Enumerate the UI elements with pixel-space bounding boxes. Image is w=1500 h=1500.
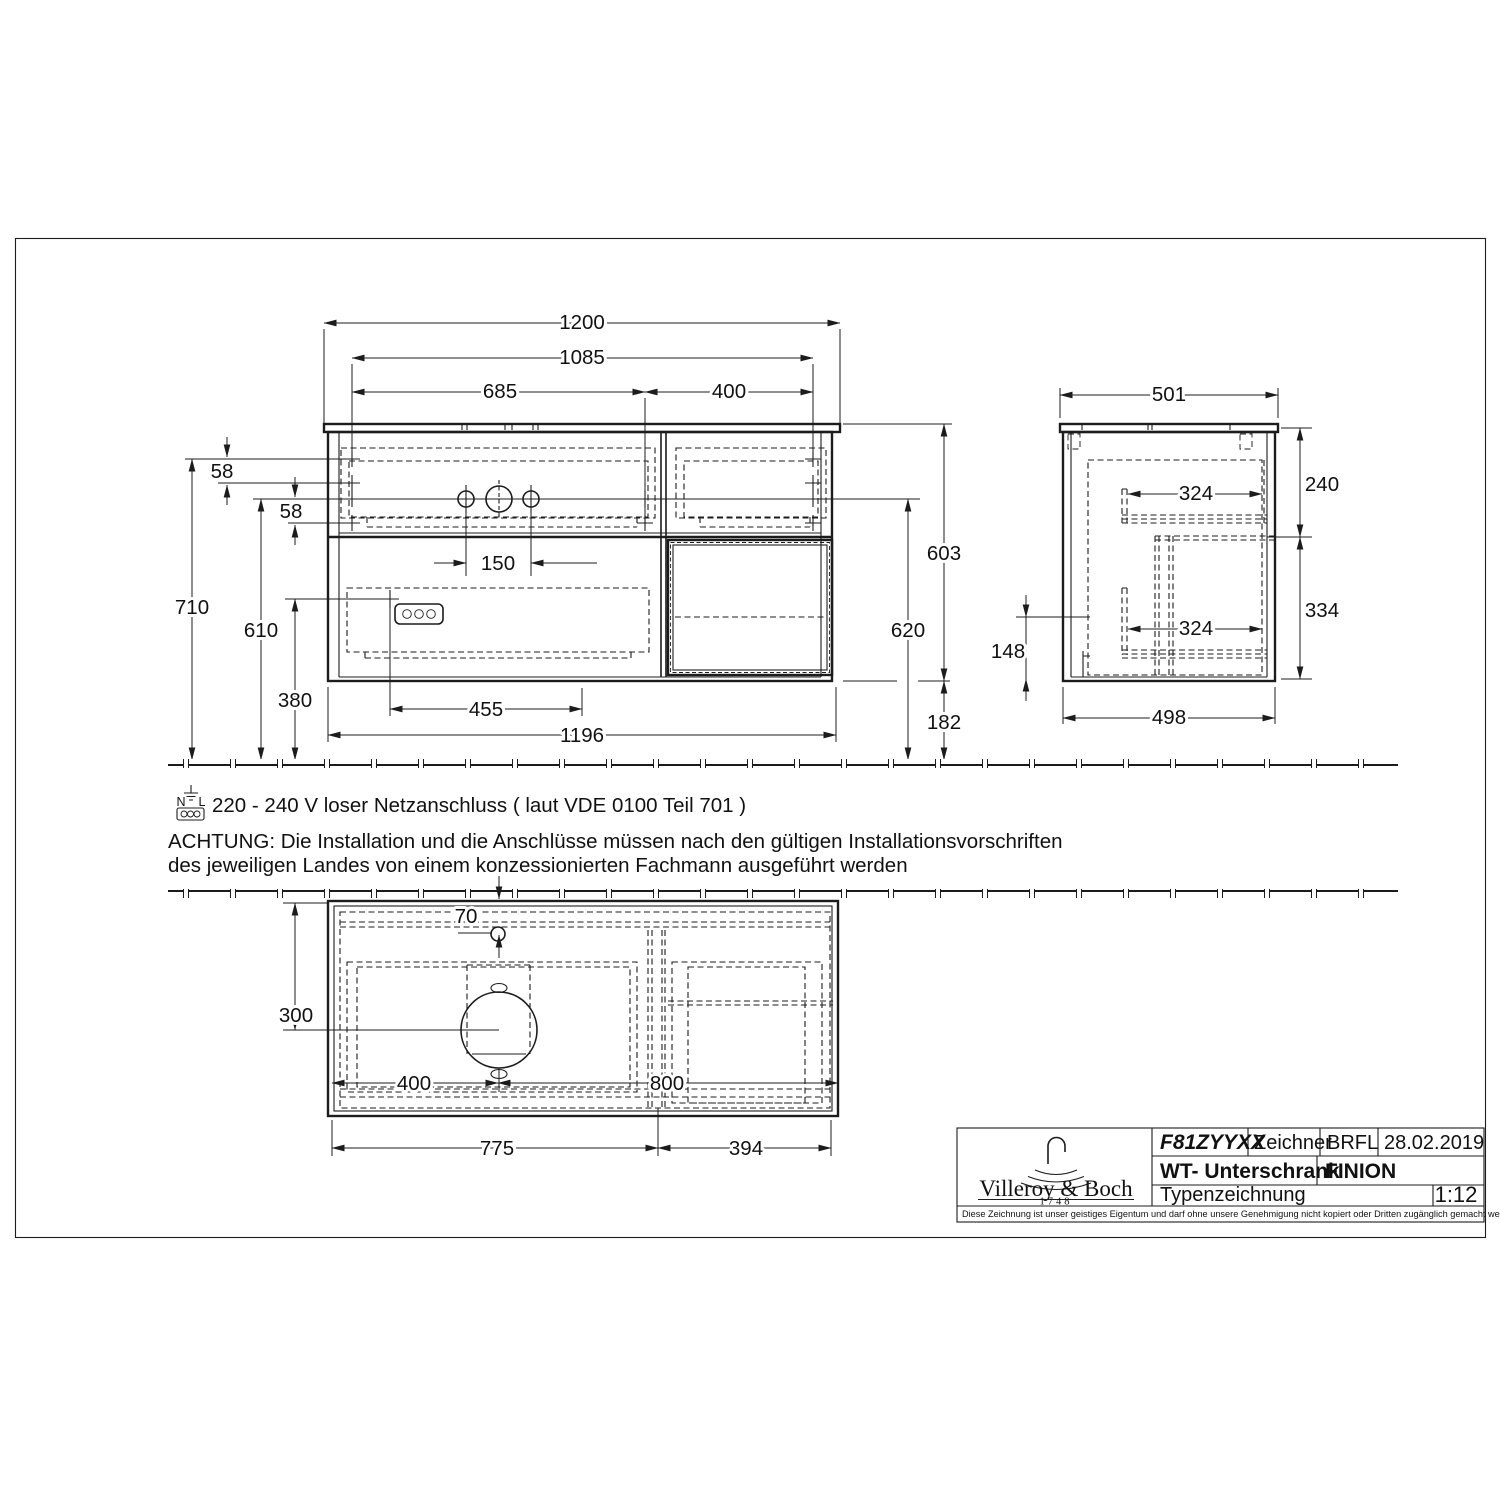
dim-front-1085: 1085 [559,346,605,369]
page-border [16,239,1486,1238]
technical-drawing-canvas: 1200 1085 685 400 58 58 710 610 380 150 … [0,0,1500,1500]
dim-front-455: 455 [469,698,503,721]
faucet-hole [491,927,505,941]
power-symbol-icon: N L [176,785,205,820]
dim-top-70: 70 [455,905,478,928]
warning-line2: des jeweiligen Landes von einem konzessi… [168,854,908,877]
dim-front-1196: 1196 [560,724,604,747]
front-cabinet-body [328,432,832,681]
dim-front-603: 603 [927,542,961,565]
dim-front-400: 400 [712,380,746,403]
dim-side-148: 148 [991,640,1025,663]
symbol-l-label: L [199,795,206,809]
disclaimer-text: Diese Zeichnung ist unser geistiges Eige… [962,1209,1500,1219]
dim-front-685: 685 [483,380,517,403]
dim-front-150: 150 [481,552,515,575]
warning-line1: ACHTUNG: Die Installation und die Anschl… [168,830,1063,853]
floor-hatch-lower [168,889,1398,898]
power-note: 220 - 240 V loser Netzanschluss ( laut V… [212,794,746,817]
top-view: 70 300 400 800 775 394 [279,876,838,1160]
dim-front-58a: 58 [211,460,234,483]
front-countertop [324,424,840,432]
floor-hatch-upper [168,759,1398,768]
socket-box [395,604,443,624]
dim-side-324b: 324 [1179,617,1213,640]
front-open-shelf [668,540,832,675]
dim-front-710: 710 [175,596,209,619]
dim-top-300: 300 [279,1004,313,1027]
dim-top-775: 775 [480,1137,514,1160]
dim-side-240: 240 [1305,473,1339,496]
zeichner-label: Zeichner [1254,1132,1332,1154]
series-name: FINION [1325,1160,1396,1183]
brand-year: 1748 [1040,1197,1073,1208]
product-type: WT- Unterschrank [1160,1160,1340,1183]
installation-notes: N L 220 - 240 V loser Netzanschluss ( la… [168,785,1063,877]
dim-side-498: 498 [1152,706,1186,729]
dim-front-620: 620 [891,619,925,642]
model-code: F81ZYYXX [1160,1131,1267,1154]
dim-side-324a: 324 [1179,482,1213,505]
front-lower-drawer [347,588,649,652]
drawing-date: 28.02.2019 [1384,1132,1484,1154]
dim-front-1200: 1200 [559,311,605,334]
dim-front-182: 182 [927,711,961,734]
drawing-scale: 1:12 [1435,1182,1478,1207]
symbol-n-label: N [176,795,185,809]
top-right-tray [672,962,822,1103]
dim-side-501: 501 [1152,383,1186,406]
side-view: 501 324 324 240 334 148 498 [991,383,1339,729]
side-countertop [1060,424,1278,432]
dim-front-380: 380 [278,689,312,712]
dim-top-394: 394 [729,1137,763,1160]
dim-top-400: 400 [397,1072,431,1095]
dim-front-58b: 58 [280,500,303,523]
drawing-sheet: 1200 1085 685 400 58 58 710 610 380 150 … [0,0,1500,1500]
dim-side-334: 334 [1305,599,1339,622]
dim-front-610: 610 [244,619,278,642]
dim-top-800: 800 [650,1072,684,1095]
zeichner-value: BRFL [1327,1132,1378,1154]
mounting-crosshairs [344,451,821,608]
title-block: Villeroy & Boch 1748 F81ZYYXX Zeichner B… [957,1128,1500,1222]
front-view: 1200 1085 685 400 58 58 710 610 380 150 … [175,311,961,760]
document-type: Typenzeichnung [1160,1184,1306,1206]
